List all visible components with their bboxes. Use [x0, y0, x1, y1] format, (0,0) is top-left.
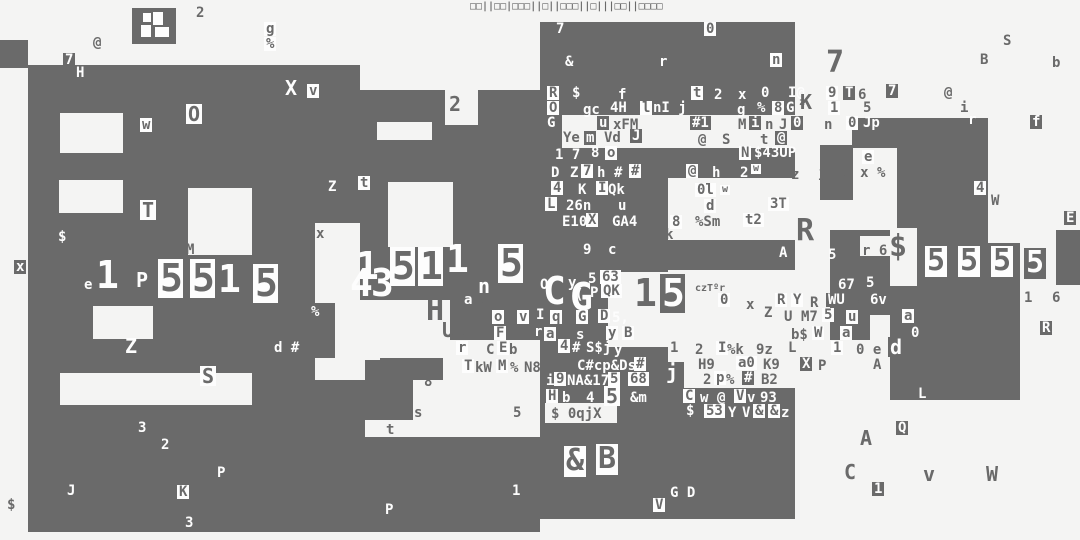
glyph: n — [478, 276, 490, 296]
glyph: 2 — [449, 94, 461, 114]
glyph: L — [918, 387, 926, 401]
glyph: A — [873, 358, 881, 372]
glyph: 6v — [868, 293, 889, 307]
glyph: 8 — [591, 146, 599, 160]
glyph: X — [800, 357, 812, 371]
glyph: kW — [475, 361, 492, 375]
glyph: S — [1003, 34, 1011, 48]
glyph: %Sm — [695, 215, 720, 229]
glyph: 5 — [822, 308, 834, 322]
glyph: 7 — [886, 84, 898, 98]
glyph: $ — [572, 86, 580, 100]
glyph: a — [462, 293, 474, 307]
dark-block — [380, 358, 443, 380]
glyph: x — [14, 260, 26, 274]
glyph: i — [749, 116, 761, 130]
glyph: t — [691, 86, 703, 100]
glyph: $ 0qjX — [551, 407, 602, 421]
glyph: Z — [570, 166, 578, 180]
glyph: # — [634, 357, 646, 371]
light-block — [60, 373, 252, 405]
glyph: A — [779, 246, 787, 260]
glyph: 1 — [218, 260, 239, 299]
glyph: X — [586, 213, 598, 227]
glyph: Qk — [608, 183, 625, 197]
glyph: 5 — [925, 246, 947, 277]
glyph: Uc — [442, 320, 466, 340]
glyph: g — [737, 103, 745, 117]
glyph: a — [902, 309, 914, 323]
glyph: u — [597, 116, 609, 130]
glyph: 5 — [604, 386, 620, 406]
glyph: X — [285, 78, 297, 98]
glyph: G — [786, 101, 794, 115]
light-block — [59, 180, 123, 213]
dark-block — [0, 40, 28, 68]
glyph: 2 — [714, 88, 722, 102]
glyph: G D — [670, 486, 695, 500]
glyph: 4 — [974, 181, 986, 195]
glyph: 5 — [498, 244, 523, 283]
glyph: n — [824, 118, 832, 132]
glyph: H — [546, 389, 558, 403]
glyph: x — [316, 227, 324, 241]
glyph: v — [517, 310, 529, 324]
glyph: 0 e — [856, 343, 881, 357]
glyph: B — [596, 444, 618, 475]
glyph: W — [856, 295, 864, 309]
glyph: m — [584, 131, 596, 145]
glyph: O — [547, 101, 559, 115]
glyph: D — [551, 166, 559, 180]
glyph: 0 — [718, 293, 730, 307]
glyph: 7 — [581, 164, 593, 178]
glyph: T — [462, 359, 474, 373]
glyph: r — [456, 341, 468, 355]
glyph: u — [618, 199, 626, 213]
glyph: W — [991, 194, 999, 208]
glyph: O — [186, 104, 202, 124]
glyph: V — [742, 406, 750, 420]
glyph: @ — [775, 131, 787, 145]
glyph: S$j — [586, 341, 611, 355]
glyph: y — [614, 343, 622, 357]
glyph: 7 — [63, 53, 75, 67]
glyph: 0 — [846, 116, 858, 130]
glyph: 9 — [583, 243, 591, 257]
glyph: W — [986, 464, 998, 484]
glyph: N8 — [524, 361, 541, 375]
glyph: p — [714, 371, 726, 385]
glyph: c — [608, 243, 616, 257]
glyph: 5 — [513, 406, 521, 420]
glyph: G — [547, 116, 555, 130]
glyph: # — [614, 166, 622, 180]
light-block — [60, 113, 123, 153]
glyph: # — [572, 341, 580, 355]
glyph: z — [799, 98, 805, 108]
glyph: e — [862, 150, 874, 164]
white-block — [155, 27, 169, 37]
glyph: 1 — [872, 482, 884, 496]
glyph: z — [781, 406, 789, 420]
glyph: 1 — [670, 341, 678, 355]
glyph: 1 — [634, 274, 655, 313]
glyph: d # — [274, 341, 299, 355]
glyph: K9 — [763, 358, 780, 372]
glyph: 0 — [704, 22, 716, 36]
light-block — [315, 358, 360, 380]
glyph: @ — [686, 164, 698, 178]
glyph: # — [742, 371, 754, 385]
glyph: $ — [686, 404, 694, 418]
glyph: D — [598, 309, 610, 323]
glyph: E10 — [562, 215, 587, 229]
glyph: a0 — [736, 356, 757, 370]
glyph: NA&17 — [567, 374, 609, 388]
glyph: #1 — [690, 116, 711, 130]
glyph: Vd — [604, 131, 621, 145]
glyph: 5 — [863, 101, 871, 115]
glyph: L — [788, 341, 796, 355]
glyph: r — [534, 325, 542, 339]
dark-block — [28, 340, 85, 532]
glyph: @ — [698, 133, 706, 147]
glyph: a — [544, 327, 556, 341]
glyph: 1 — [1024, 291, 1032, 305]
glyph: 9 — [554, 372, 566, 386]
glyph: 5 — [828, 248, 836, 262]
glyph: 1 — [96, 256, 117, 295]
glyph: 6 — [1052, 291, 1060, 305]
glyph: 1 — [828, 101, 840, 115]
glyph: 2 — [196, 6, 204, 20]
glyph: x — [746, 298, 754, 312]
glyph: 7 — [826, 48, 844, 79]
glyph: v — [307, 84, 319, 98]
glyph: B2 — [761, 373, 778, 387]
glyph: y — [606, 326, 618, 340]
glyph: $ — [889, 232, 907, 263]
glyph: Z — [764, 306, 772, 320]
glyph: h — [712, 166, 720, 180]
glyph: & — [768, 404, 780, 418]
glyph: % — [264, 37, 276, 51]
glyph: I — [596, 181, 608, 195]
glyph: 4 — [551, 181, 563, 195]
glyph: R — [547, 86, 559, 100]
glyph: w — [751, 164, 761, 174]
glyph: % — [510, 361, 518, 375]
glyph: C — [844, 462, 856, 482]
glyph: R — [775, 293, 787, 307]
glyph: E — [1064, 211, 1076, 225]
glyph: e — [84, 278, 92, 292]
glyph: Ye — [563, 131, 580, 145]
glitch-art-canvas: □□||□□|□□□||□||□□□||□|||□□||□□□□2@7Hg%70… — [0, 0, 1080, 540]
glyph: f — [1030, 115, 1042, 129]
glyph: E — [497, 341, 509, 355]
glyph: S — [722, 133, 730, 147]
glyph: 2 — [161, 438, 169, 452]
glyph: o — [492, 310, 504, 324]
glyph: j — [666, 362, 678, 382]
glyph: V — [653, 498, 665, 512]
glyph: b — [562, 391, 570, 405]
glyph: 3 — [138, 421, 146, 435]
glyph: l — [640, 101, 652, 115]
glyph: 5 — [190, 259, 215, 298]
glyph: 8 — [772, 101, 784, 115]
light-block — [377, 122, 432, 140]
light-block — [188, 188, 252, 255]
glyph: $ — [7, 498, 15, 512]
glyph: H — [76, 66, 84, 80]
glyph: M — [186, 243, 194, 257]
glyph: 5 — [866, 276, 874, 290]
dark-block — [1056, 230, 1080, 285]
glyph: H9 — [698, 358, 715, 372]
glyph: I — [536, 308, 544, 322]
glyph: @ — [93, 36, 101, 50]
glyph: GA4 — [612, 215, 637, 229]
glyph: @ — [944, 86, 952, 100]
glyph: 5 — [1024, 248, 1046, 279]
glyph: o — [605, 146, 617, 160]
glyph: R — [796, 216, 814, 247]
glyph: K — [177, 485, 189, 499]
glyph: 5 — [660, 274, 685, 313]
glyph: P — [818, 359, 826, 373]
glyph: 1 7 — [555, 148, 580, 162]
glyph: □□||□□|□□□||□||□□□||□|||□□||□□□□ — [470, 2, 663, 12]
glyph: 68 — [628, 372, 649, 386]
glyph: 2 — [703, 373, 711, 387]
glyph: R — [1040, 321, 1052, 335]
glyph: u — [846, 310, 858, 324]
glyph: M — [496, 359, 508, 373]
glyph: L — [545, 197, 557, 211]
glyph: 5 — [253, 264, 278, 303]
glyph: K — [578, 183, 586, 197]
glyph: 2 — [740, 166, 748, 180]
glyph: 5 — [958, 246, 980, 277]
glyph: M — [738, 118, 746, 132]
glyph: % — [726, 373, 734, 387]
glyph: Y — [791, 293, 803, 307]
glyph: b — [1052, 56, 1060, 70]
glyph: P — [590, 286, 598, 300]
dark-block — [85, 120, 360, 185]
glyph: 1 — [512, 484, 520, 498]
white-block — [141, 25, 151, 37]
glyph: 0 — [911, 326, 919, 340]
glyph: w — [720, 185, 730, 195]
glyph: B — [980, 53, 988, 67]
glyph: 5, — [612, 311, 629, 325]
glyph: A — [860, 428, 872, 448]
glyph: Q — [896, 421, 908, 435]
glyph: s — [414, 406, 422, 420]
glyph: r — [659, 55, 667, 69]
glyph: V — [734, 389, 746, 403]
glyph: 1 — [446, 240, 467, 279]
glyph: 9 — [826, 86, 838, 100]
dark-block — [540, 22, 795, 65]
light-block — [388, 182, 453, 247]
glyph: n — [765, 118, 773, 132]
glyph: 4 — [558, 339, 570, 353]
glyph: t2 — [743, 213, 764, 227]
white-block — [143, 13, 151, 22]
glyph: 4H — [610, 101, 627, 115]
glyph: M7 — [801, 310, 818, 324]
glyph: WU — [826, 293, 847, 307]
glyph: Y — [728, 406, 736, 420]
glyph: B — [622, 326, 634, 340]
glyph: Jp — [863, 116, 880, 130]
glyph: 5 — [390, 247, 415, 286]
glyph: 0 — [761, 86, 769, 100]
glyph: S — [200, 366, 216, 386]
glyph: F — [494, 326, 506, 340]
glyph: nI j — [653, 101, 687, 115]
glyph: $ — [58, 230, 66, 244]
glyph: 0l — [695, 183, 716, 197]
glyph: & — [565, 55, 573, 69]
glyph: k — [665, 228, 673, 242]
glyph: P — [385, 503, 393, 517]
glyph: d — [704, 199, 716, 213]
glyph: czTºr — [695, 284, 725, 294]
glyph: z — [791, 168, 799, 182]
glyph: h — [597, 166, 605, 180]
glyph: d — [888, 337, 904, 357]
glyph: t — [358, 176, 370, 190]
glyph: 7 — [556, 22, 564, 36]
glyph: C — [683, 389, 695, 403]
glyph: C — [543, 272, 564, 311]
glyph: % — [757, 101, 765, 115]
glyph: & — [564, 446, 586, 477]
glyph: G — [576, 310, 588, 324]
dark-block — [85, 340, 283, 532]
glyph: 1 — [418, 247, 443, 286]
glyph: 1 — [831, 341, 843, 355]
glyph: C — [486, 343, 494, 357]
glyph: J — [630, 129, 642, 143]
glyph: 5 — [158, 259, 183, 298]
glyph: 53 — [704, 404, 725, 418]
glyph: 9z — [756, 343, 773, 357]
glyph: 4 — [586, 391, 594, 405]
glyph: Z — [125, 336, 137, 356]
glyph: & — [753, 404, 765, 418]
glyph: r — [968, 113, 976, 127]
glyph: $43UP — [754, 146, 796, 160]
glyph: T — [843, 86, 855, 100]
glyph: J — [67, 484, 75, 498]
glyph: &m — [630, 391, 647, 405]
glyph: g — [264, 22, 276, 36]
glyph: v — [923, 464, 935, 484]
white-block — [153, 12, 163, 25]
glyph: P — [217, 466, 225, 480]
glyph: 5 — [991, 246, 1013, 277]
glyph: % — [311, 305, 319, 319]
glyph: P — [136, 270, 148, 290]
glyph: r 6 — [862, 244, 887, 258]
glyph: w — [140, 118, 152, 132]
glyph: 3 — [185, 516, 193, 530]
light-block — [93, 306, 153, 339]
glyph: 67 — [838, 278, 855, 292]
glyph: T — [140, 200, 156, 220]
glyph: q — [550, 310, 562, 324]
glyph: jp i x % — [818, 166, 885, 180]
glyph: n — [770, 53, 782, 67]
glyph: U — [784, 310, 792, 324]
glyph: 8 — [424, 375, 432, 389]
glyph: 3T — [768, 197, 789, 211]
glyph: t — [386, 423, 394, 437]
glyph: 1 — [356, 247, 377, 286]
glyph: N — [739, 146, 751, 160]
glyph: QK — [601, 284, 622, 298]
glyph: x — [738, 88, 746, 102]
glyph: b — [509, 343, 517, 357]
glyph: # — [629, 164, 641, 178]
glyph: 2 — [695, 343, 703, 357]
glyph: 0 — [791, 116, 803, 130]
glyph: a — [840, 326, 852, 340]
glyph: Z — [328, 180, 336, 194]
glyph: W — [812, 326, 824, 340]
